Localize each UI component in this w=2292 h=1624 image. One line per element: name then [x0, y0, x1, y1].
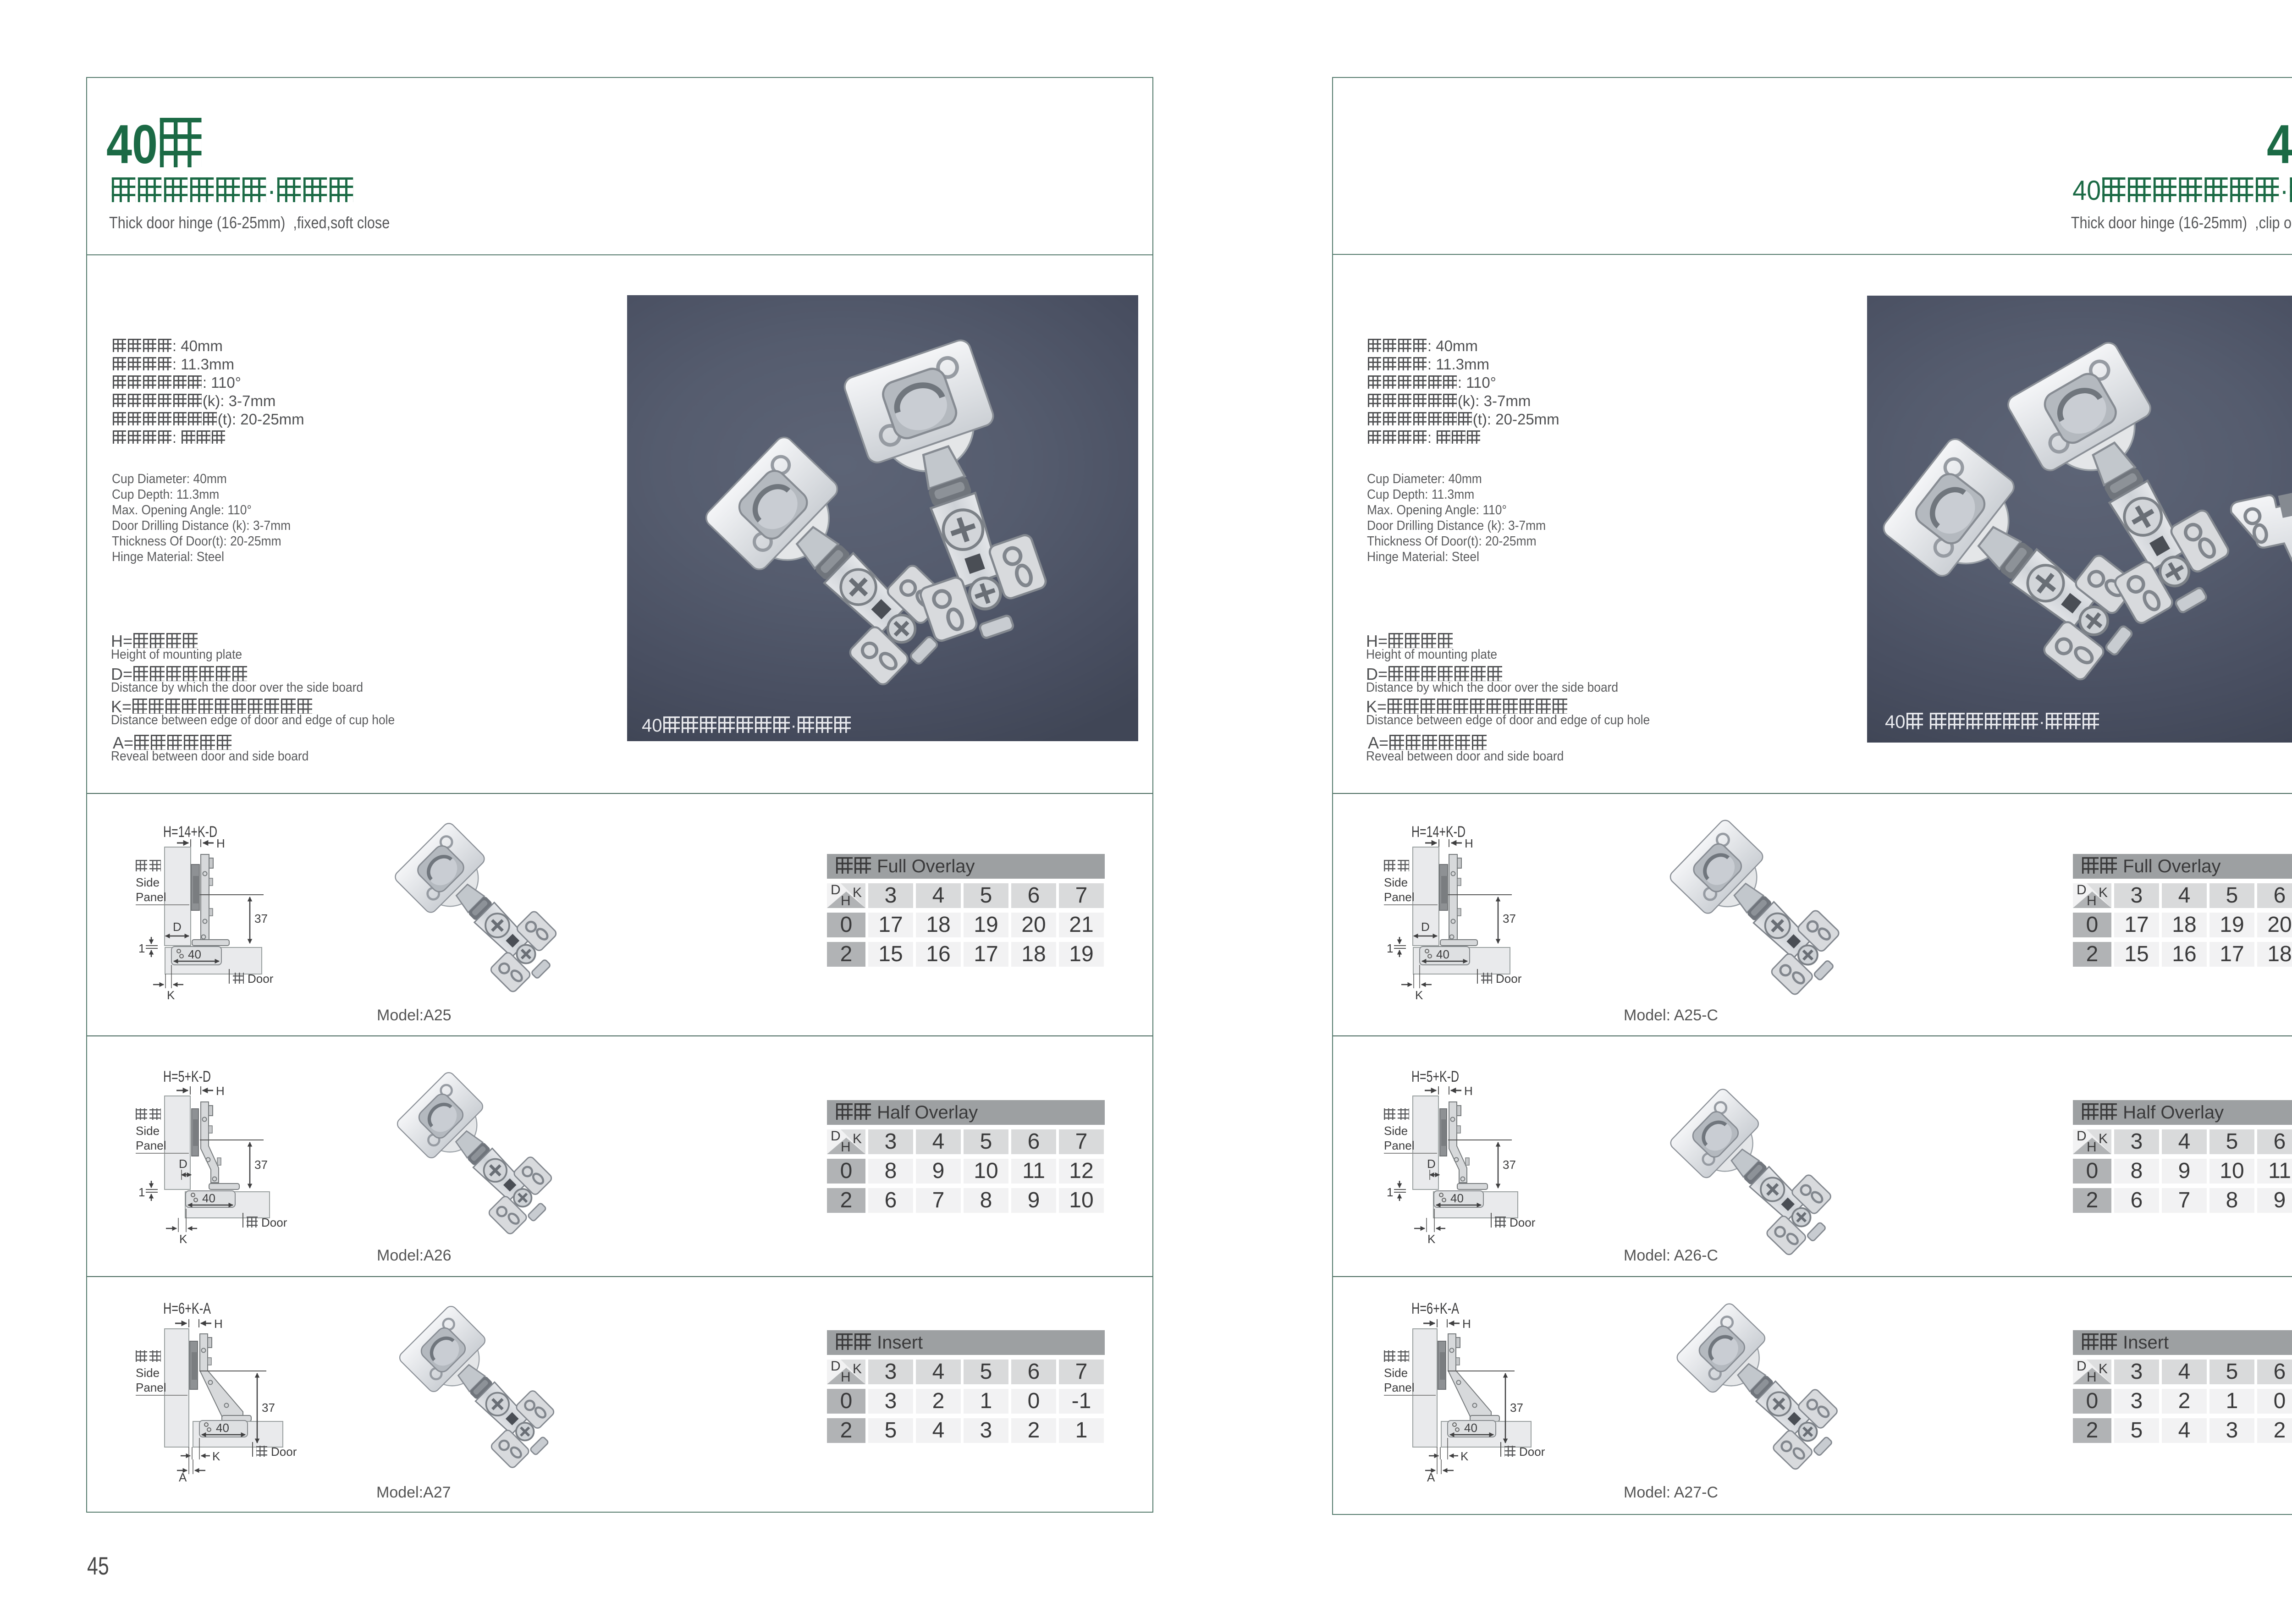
- svg-text:37: 37: [1503, 912, 1516, 925]
- svg-text:1: 1: [138, 941, 145, 955]
- svg-text:D: D: [179, 1157, 187, 1171]
- svg-text:H=14+K-D: H=14+K-D: [1411, 823, 1466, 841]
- svg-text:H=5+K-D: H=5+K-D: [163, 1068, 211, 1085]
- svg-text:D: D: [2077, 883, 2087, 897]
- svg-text:H=6+K-A: H=6+K-A: [163, 1302, 211, 1317]
- svg-text:Panel: Panel: [1384, 1381, 1415, 1394]
- svg-text:1: 1: [1387, 941, 1393, 955]
- svg-text:K: K: [1460, 1449, 1469, 1463]
- svg-text:K: K: [853, 885, 862, 900]
- svg-text:1: 1: [1387, 1185, 1393, 1199]
- svg-text:K: K: [179, 1232, 187, 1246]
- svg-text:H=14+K-D: H=14+K-D: [163, 823, 217, 841]
- svg-text:D: D: [2077, 1129, 2087, 1144]
- svg-text:H: H: [2087, 1370, 2097, 1384]
- svg-text:A: A: [1427, 1470, 1435, 1484]
- svg-text:40: 40: [1436, 947, 1449, 961]
- svg-text:H: H: [1465, 837, 1473, 850]
- svg-text:Door: Door: [1496, 972, 1522, 985]
- svg-text:1: 1: [138, 1185, 145, 1199]
- svg-text:H=5+K-D: H=5+K-D: [1411, 1068, 1459, 1085]
- svg-text:Side: Side: [136, 1366, 160, 1380]
- svg-text:K: K: [212, 1449, 220, 1463]
- svg-text:H: H: [214, 1317, 223, 1331]
- svg-text:K: K: [1415, 988, 1423, 1002]
- svg-text:H: H: [841, 893, 851, 908]
- svg-text:Panel: Panel: [136, 1139, 166, 1152]
- svg-text:40: 40: [1464, 1421, 1477, 1435]
- svg-text:37: 37: [254, 1158, 268, 1172]
- svg-text:H: H: [2087, 893, 2097, 908]
- svg-text:37: 37: [1510, 1401, 1523, 1415]
- svg-text:K: K: [853, 1361, 862, 1376]
- svg-text:H: H: [1462, 1317, 1471, 1331]
- svg-text:37: 37: [1503, 1158, 1516, 1172]
- svg-text:Panel: Panel: [136, 1381, 166, 1394]
- svg-text:D: D: [1427, 1157, 1436, 1171]
- svg-text:D: D: [831, 1129, 841, 1144]
- svg-text:D: D: [2077, 1360, 2087, 1374]
- svg-text:Panel: Panel: [136, 890, 166, 904]
- svg-text:Side: Side: [136, 1124, 160, 1138]
- svg-text:37: 37: [254, 912, 268, 925]
- svg-text:Side: Side: [136, 875, 160, 889]
- svg-text:Panel: Panel: [1384, 890, 1415, 904]
- svg-text:H: H: [1464, 1084, 1473, 1098]
- svg-text:D: D: [831, 883, 841, 897]
- svg-text:H: H: [216, 837, 225, 850]
- svg-text:Side: Side: [1384, 1124, 1408, 1138]
- svg-text:D: D: [1421, 920, 1430, 934]
- svg-text:H: H: [841, 1140, 851, 1154]
- svg-text:H: H: [841, 1370, 851, 1384]
- svg-text:K: K: [853, 1131, 862, 1146]
- svg-text:40: 40: [188, 947, 201, 961]
- svg-text:K: K: [2099, 1131, 2108, 1146]
- svg-text:K: K: [167, 988, 175, 1002]
- svg-text:Door: Door: [261, 1216, 287, 1229]
- svg-text:D: D: [173, 920, 182, 934]
- svg-text:Door: Door: [1519, 1445, 1545, 1459]
- svg-text:Side: Side: [1384, 875, 1408, 889]
- svg-text:H: H: [216, 1084, 225, 1098]
- svg-text:Door: Door: [1510, 1216, 1536, 1229]
- svg-text:K: K: [2099, 1361, 2108, 1376]
- svg-text:40: 40: [1450, 1191, 1464, 1205]
- svg-text:Side: Side: [1384, 1366, 1408, 1380]
- svg-text:H=6+K-A: H=6+K-A: [1411, 1302, 1459, 1317]
- svg-text:K: K: [1427, 1232, 1436, 1246]
- svg-text:40: 40: [202, 1191, 215, 1205]
- svg-text:A: A: [179, 1470, 187, 1484]
- svg-text:Door: Door: [271, 1445, 297, 1459]
- svg-text:Panel: Panel: [1384, 1139, 1415, 1152]
- svg-text:H: H: [2087, 1140, 2097, 1154]
- svg-text:37: 37: [262, 1401, 275, 1415]
- svg-text:D: D: [831, 1360, 841, 1374]
- svg-text:K: K: [2099, 885, 2108, 900]
- svg-text:40: 40: [216, 1421, 229, 1435]
- svg-text:Door: Door: [248, 972, 274, 985]
